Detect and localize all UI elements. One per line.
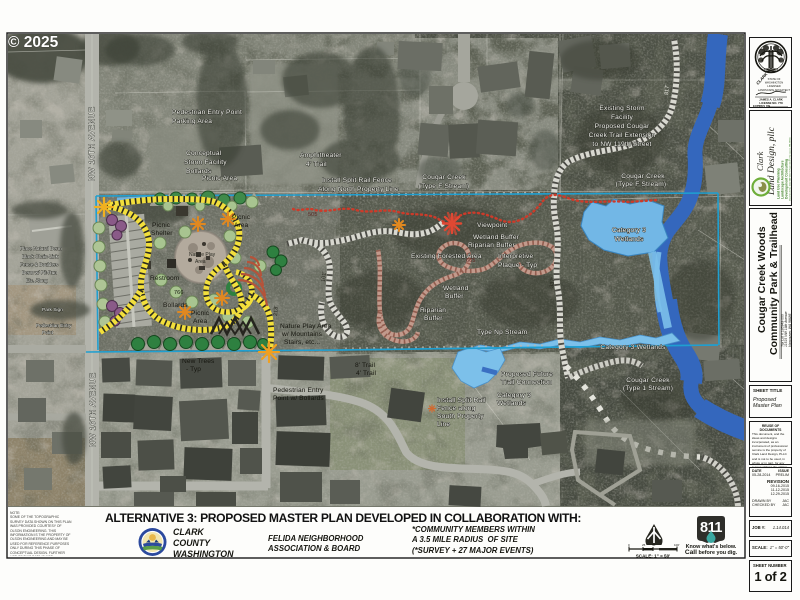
svg-text:360-904-4670 | 1510 NW 99th St: 360-904-4670 | 1510 NW 99th St Suite 111… xyxy=(789,137,791,201)
svg-text:Existing Storm: Existing Storm xyxy=(599,105,645,112)
svg-text:Nature Play: Nature Play xyxy=(189,252,216,258)
svg-text:Category 3: Category 3 xyxy=(612,227,646,234)
svg-text:(Type F Stream): (Type F Stream) xyxy=(419,183,470,190)
svg-text:Creek Trail Extension: Creek Trail Extension xyxy=(589,132,656,139)
svg-text:Bollards: Bollards xyxy=(186,168,212,175)
svg-text:NW 16TH AVENUE: NW 16TH AVENUE xyxy=(88,372,97,447)
svg-text:Black Chain-Link: Black Chain-Link xyxy=(22,254,59,260)
svg-text:Development Consulting: Development Consulting xyxy=(785,159,789,199)
svg-text:Type Np Stream: Type Np Stream xyxy=(477,329,528,336)
svg-text:Buffer: Buffer xyxy=(424,315,443,322)
svg-text:25: 25 xyxy=(642,544,646,547)
svg-text:Riparian Buffer: Riparian Buffer xyxy=(468,242,515,249)
svg-text:Riparian: Riparian xyxy=(420,307,446,314)
svg-text:Install Split Rail Fence: Install Split Rail Fence xyxy=(322,177,392,184)
svg-text:8' Trail: 8' Trail xyxy=(355,362,375,369)
svg-text:Etc. Along: Etc. Along xyxy=(26,278,48,284)
svg-text:(Type 1 Stream): (Type 1 Stream) xyxy=(623,385,673,392)
svg-text:Interpretive: Interpretive xyxy=(498,253,534,260)
svg-text:Point: Point xyxy=(42,330,54,336)
svg-text:Cougar Creek Woods: Cougar Creek Woods xyxy=(756,226,768,333)
svg-text:Storm Facility: Storm Facility xyxy=(184,159,227,166)
svg-text:Wetland Buffer: Wetland Buffer xyxy=(473,234,520,241)
svg-text:SCALE: 1" = 50': SCALE: 1" = 50' xyxy=(636,554,671,559)
svg-text:LICENSED: LICENSED xyxy=(767,84,781,88)
svg-text:505: 505 xyxy=(308,212,317,218)
svg-text:© 2025: © 2025 xyxy=(8,34,59,51)
svg-text:50: 50 xyxy=(652,544,656,547)
svg-text:Wetlands: Wetlands xyxy=(615,236,644,243)
svg-text:Parking Area: Parking Area xyxy=(172,118,212,125)
svg-text:Point w/ Bollards: Point w/ Bollards xyxy=(273,395,324,402)
svg-text:Pedestrian Entry Point: Pedestrian Entry Point xyxy=(172,109,242,116)
svg-text:Trail Connection: Trail Connection xyxy=(501,379,552,386)
svg-text:Nature Play Area: Nature Play Area xyxy=(280,323,332,330)
svg-text:Area: Area xyxy=(195,259,206,265)
svg-text:Pedestrian Entry: Pedestrian Entry xyxy=(273,387,324,394)
svg-text:Community Park & Trailhead: Community Park & Trailhead xyxy=(768,212,780,355)
svg-text:Cougar Creek: Cougar Creek xyxy=(422,174,466,181)
svg-text:Clark: Clark xyxy=(755,151,765,171)
svg-text:Berm w/ Pit-Run: Berm w/ Pit-Run xyxy=(22,270,57,276)
svg-text:0: 0 xyxy=(628,544,630,547)
svg-text:STATE OF: STATE OF xyxy=(768,77,781,81)
svg-text:Stairs, etc...: Stairs, etc... xyxy=(284,339,320,346)
svg-text:Area: Area xyxy=(193,318,208,325)
svg-text:Install Split Rail: Install Split Rail xyxy=(437,397,486,404)
svg-text:766: 766 xyxy=(174,290,183,296)
svg-text:Conceptual: Conceptual xyxy=(186,150,222,157)
svg-text:Cougar Creek: Cougar Creek xyxy=(626,377,670,384)
svg-text:101': 101' xyxy=(321,271,328,282)
svg-text:Proposed Future: Proposed Future xyxy=(501,371,553,378)
svg-text:w/ Mountains: w/ Mountains xyxy=(281,331,323,338)
svg-text:Place Natural Berm: Place Natural Berm xyxy=(20,246,62,252)
svg-text:Picnic: Picnic xyxy=(232,214,251,221)
svg-text:Shelter: Shelter xyxy=(151,230,173,237)
svg-text:Bollards: Bollards xyxy=(163,302,188,309)
svg-text:Amphitheater: Amphitheater xyxy=(300,152,342,159)
svg-text:- Typ: - Typ xyxy=(186,366,201,373)
svg-text:Plaque - Typ: Plaque - Typ xyxy=(498,262,537,269)
svg-text:Along North Property Line: Along North Property Line xyxy=(318,186,399,193)
svg-text:Fence & Boulders: Fence & Boulders xyxy=(20,262,59,268)
svg-text:EXPIRES ON: EXPIRES ON xyxy=(753,104,770,107)
svg-text:Proposed Cougar: Proposed Cougar xyxy=(595,123,650,130)
svg-text:LANDSCAPE ARCHITECT: LANDSCAPE ARCHITECT xyxy=(758,88,791,92)
svg-text:South Property: South Property xyxy=(437,413,484,420)
svg-text:Buffer: Buffer xyxy=(445,293,464,300)
svg-text:Wetlands: Wetlands xyxy=(497,400,526,407)
svg-text:(Type F Stream): (Type F Stream) xyxy=(616,181,667,188)
svg-text:WASHINGTON: WASHINGTON xyxy=(765,81,783,85)
svg-text:Viewpoint: Viewpoint xyxy=(477,222,507,229)
svg-text:Fence along: Fence along xyxy=(437,405,476,412)
svg-text:Wetland: Wetland xyxy=(443,285,469,292)
svg-text:Picnic: Picnic xyxy=(191,310,210,317)
svg-text:Line: Line xyxy=(437,421,450,428)
svg-text:NW 16TH AVENUE: NW 16TH AVENUE xyxy=(87,106,96,181)
svg-text:Cougar Creek: Cougar Creek xyxy=(621,173,665,180)
svg-text:Park Sign: Park Sign xyxy=(42,307,63,313)
svg-text:665: 665 xyxy=(466,258,475,264)
svg-text:Vancouver, WA 98685: Vancouver, WA 98685 xyxy=(788,313,791,347)
svg-text:New Trees: New Trees xyxy=(182,358,215,365)
svg-text:Picnic Area: Picnic Area xyxy=(202,175,237,182)
svg-text:Facility: Facility xyxy=(611,114,634,121)
svg-text:Restroom: Restroom xyxy=(150,275,180,282)
svg-text:to NW 119th Street: to NW 119th Street xyxy=(592,141,651,148)
svg-text:Area: Area xyxy=(234,222,249,229)
svg-text:4' Trail: 4' Trail xyxy=(356,370,376,377)
svg-text:4' Trail: 4' Trail xyxy=(306,161,327,168)
svg-text:218': 218' xyxy=(273,305,280,316)
svg-text:Picnic: Picnic xyxy=(152,222,171,229)
svg-text:Category 3 Wetlands: Category 3 Wetlands xyxy=(600,344,666,351)
svg-text:100': 100' xyxy=(674,544,680,547)
svg-text:Pedestrian Entry: Pedestrian Entry xyxy=(36,323,72,329)
svg-text:817': 817' xyxy=(664,84,671,95)
svg-text:Category 3: Category 3 xyxy=(497,392,531,399)
